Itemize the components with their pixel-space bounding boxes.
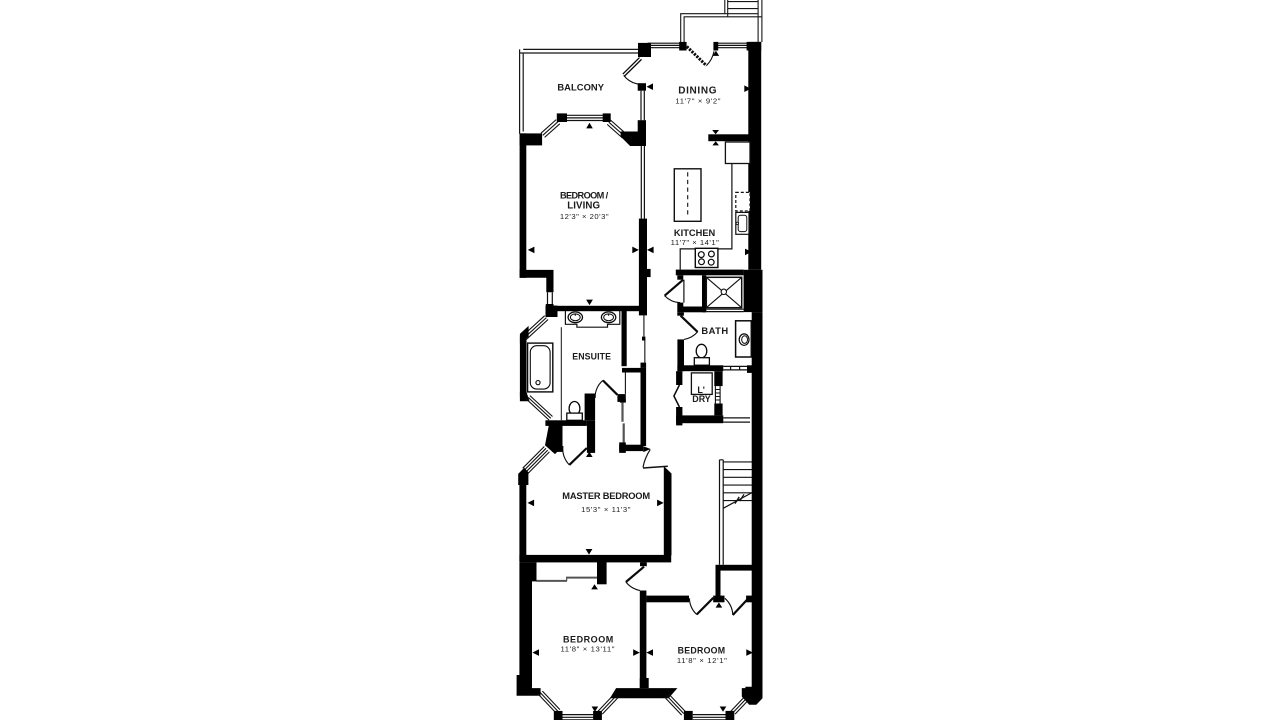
svg-text:LIVING: LIVING <box>567 201 600 212</box>
svg-text:BATH: BATH <box>701 325 728 336</box>
svg-text:KITCHEN: KITCHEN <box>674 228 716 238</box>
svg-text:MASTER BEDROOM: MASTER BEDROOM <box>562 491 650 501</box>
svg-text:11'7" × 14'1": 11'7" × 14'1" <box>671 238 720 247</box>
svg-text:15'3" × 11'3": 15'3" × 11'3" <box>581 505 631 514</box>
svg-text:11'8" × 13'11": 11'8" × 13'11" <box>560 645 615 654</box>
svg-text:DRY: DRY <box>692 394 710 404</box>
svg-text:BALCONY: BALCONY <box>557 81 604 92</box>
svg-text:BEDROOM: BEDROOM <box>563 635 614 645</box>
svg-text:12'3" × 20'3": 12'3" × 20'3" <box>560 212 609 221</box>
svg-text:11'8" × 12'1": 11'8" × 12'1" <box>677 656 728 665</box>
svg-text:BEDROOM /: BEDROOM / <box>560 190 609 200</box>
svg-text:ENSUITE: ENSUITE <box>572 352 611 362</box>
svg-text:11'7" × 9'2": 11'7" × 9'2" <box>675 97 721 106</box>
svg-text:BEDROOM: BEDROOM <box>678 645 726 655</box>
svg-text:DINING: DINING <box>678 85 717 96</box>
